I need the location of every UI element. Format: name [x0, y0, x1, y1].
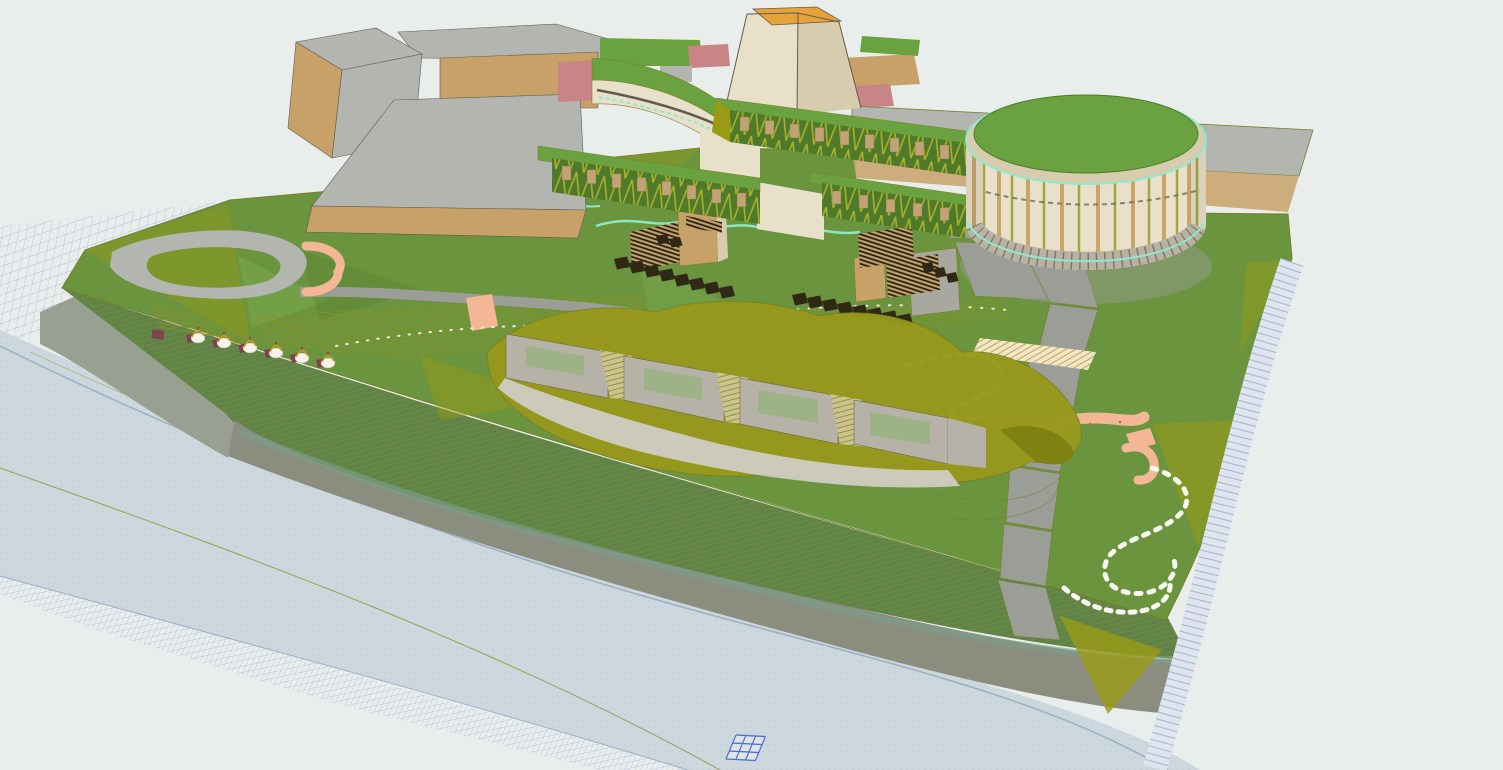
- cylindrical-pavilion[interactable]: [960, 95, 1212, 304]
- model-viewport[interactable]: [0, 0, 1503, 770]
- rose-roof2: [688, 44, 730, 68]
- model-canvas[interactable]: [0, 0, 1503, 770]
- cylinder-green-roof: [974, 95, 1198, 173]
- plaza-front-wall: [306, 206, 586, 238]
- pavilion-base-start: [151, 329, 164, 340]
